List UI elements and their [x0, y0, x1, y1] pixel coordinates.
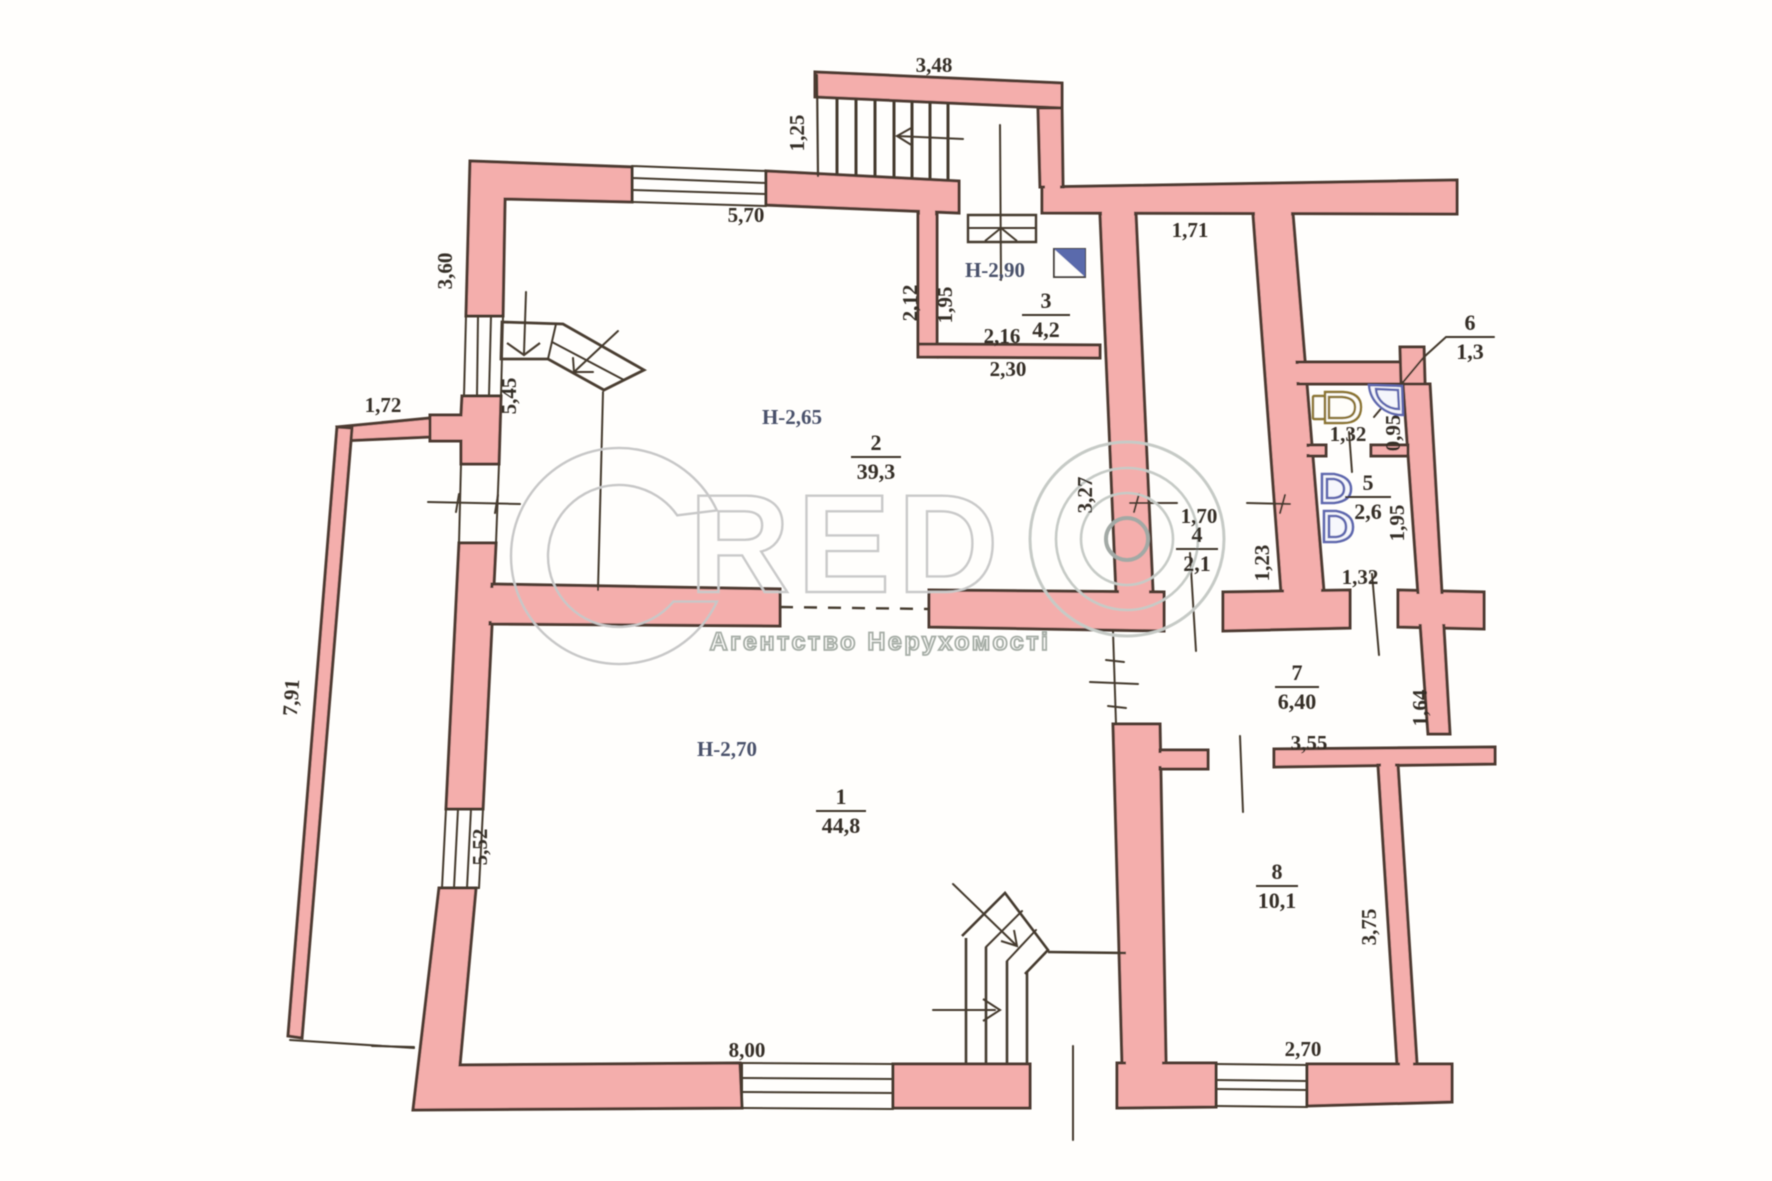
svg-text:1,95: 1,95: [1385, 505, 1409, 542]
svg-text:Н-2,70: Н-2,70: [697, 737, 757, 761]
svg-text:7: 7: [1292, 660, 1303, 685]
svg-text:1: 1: [836, 784, 847, 809]
svg-text:2: 2: [871, 430, 882, 455]
svg-text:2,6: 2,6: [1354, 499, 1382, 524]
svg-text:Н-2,65: Н-2,65: [762, 405, 822, 429]
svg-text:3,75: 3,75: [1357, 909, 1381, 946]
svg-text:1,95: 1,95: [933, 287, 957, 324]
svg-text:5: 5: [1363, 470, 1374, 495]
svg-text:1,32: 1,32: [1342, 565, 1379, 589]
svg-text:44,8: 44,8: [822, 813, 861, 838]
svg-text:1,64: 1,64: [1408, 689, 1432, 726]
svg-text:7,91: 7,91: [278, 678, 305, 716]
svg-text:1,25: 1,25: [785, 115, 809, 152]
svg-text:4: 4: [1192, 522, 1203, 547]
svg-text:3,48: 3,48: [916, 53, 953, 77]
svg-text:3,27: 3,27: [1073, 477, 1097, 514]
svg-text:4,2: 4,2: [1032, 317, 1060, 342]
svg-text:1,71: 1,71: [1172, 218, 1209, 242]
svg-text:3,60: 3,60: [433, 253, 457, 290]
svg-text:10,1: 10,1: [1258, 888, 1297, 913]
svg-text:1,72: 1,72: [365, 393, 402, 417]
svg-text:3,55: 3,55: [1291, 731, 1328, 755]
svg-text:0,95: 0,95: [1381, 415, 1405, 452]
svg-text:1,32: 1,32: [1330, 422, 1367, 446]
svg-text:2,12: 2,12: [898, 285, 922, 322]
svg-text:1,23: 1,23: [1250, 545, 1274, 582]
svg-text:5,52: 5,52: [468, 829, 492, 866]
svg-text:8,00: 8,00: [729, 1038, 766, 1062]
svg-text:3: 3: [1041, 288, 1052, 313]
svg-text:6: 6: [1465, 310, 1476, 335]
svg-text:39,3: 39,3: [857, 459, 896, 484]
svg-text:2,70: 2,70: [1285, 1037, 1322, 1061]
svg-text:6,40: 6,40: [1278, 689, 1317, 714]
svg-text:5,45: 5,45: [497, 378, 521, 415]
svg-text:1,3: 1,3: [1456, 339, 1484, 364]
svg-text:2,1: 2,1: [1183, 551, 1211, 576]
svg-text:RED: RED: [689, 465, 1006, 622]
svg-text:Н-2,90: Н-2,90: [965, 258, 1025, 282]
svg-text:Агентство Нерухомості: Агентство Нерухомості: [710, 628, 1051, 656]
svg-text:2,16: 2,16: [984, 324, 1021, 348]
svg-text:2,30: 2,30: [990, 357, 1027, 381]
svg-text:8: 8: [1272, 859, 1283, 884]
svg-text:5,70: 5,70: [728, 203, 765, 227]
